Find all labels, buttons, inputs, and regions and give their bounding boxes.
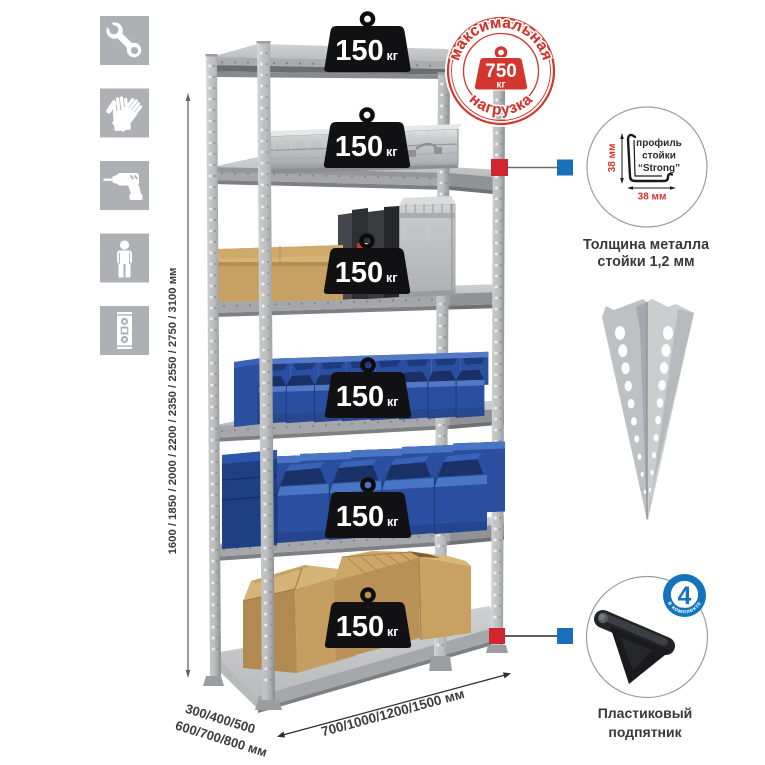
svg-text:Толщина металла: Толщина металла bbox=[583, 237, 710, 253]
svg-text:профиль: профиль bbox=[636, 137, 682, 149]
svg-text:кг: кг bbox=[387, 49, 398, 63]
svg-text:150: 150 bbox=[336, 501, 384, 533]
svg-text:700/1000/1200/1500 мм: 700/1000/1200/1500 мм bbox=[320, 686, 466, 739]
svg-text:150: 150 bbox=[335, 35, 383, 67]
svg-text:кг: кг bbox=[496, 80, 505, 91]
svg-text:150: 150 bbox=[336, 381, 384, 413]
svg-text:кг: кг bbox=[387, 625, 398, 639]
svg-text:38 мм: 38 мм bbox=[607, 144, 618, 173]
svg-text:кг: кг bbox=[387, 395, 398, 409]
svg-text:150: 150 bbox=[335, 257, 383, 289]
svg-text:150: 150 bbox=[336, 611, 384, 643]
svg-text:“Strong”: “Strong” bbox=[638, 163, 680, 174]
svg-text:Пластиковый: Пластиковый bbox=[598, 705, 693, 721]
svg-text:кг: кг bbox=[387, 515, 398, 529]
svg-text:кг: кг bbox=[386, 145, 397, 159]
svg-text:кг: кг bbox=[386, 271, 397, 285]
svg-text:150: 150 bbox=[335, 131, 383, 163]
svg-text:стойки 1,2 мм: стойки 1,2 мм bbox=[597, 254, 694, 270]
svg-text:38 мм: 38 мм bbox=[638, 192, 667, 203]
svg-text:подпятник: подпятник bbox=[608, 724, 682, 740]
svg-text:1600 / 1850 / 2000 / 2200 / 23: 1600 / 1850 / 2000 / 2200 / 2350 / 2550 … bbox=[167, 268, 179, 555]
svg-text:стойки: стойки bbox=[642, 151, 676, 162]
